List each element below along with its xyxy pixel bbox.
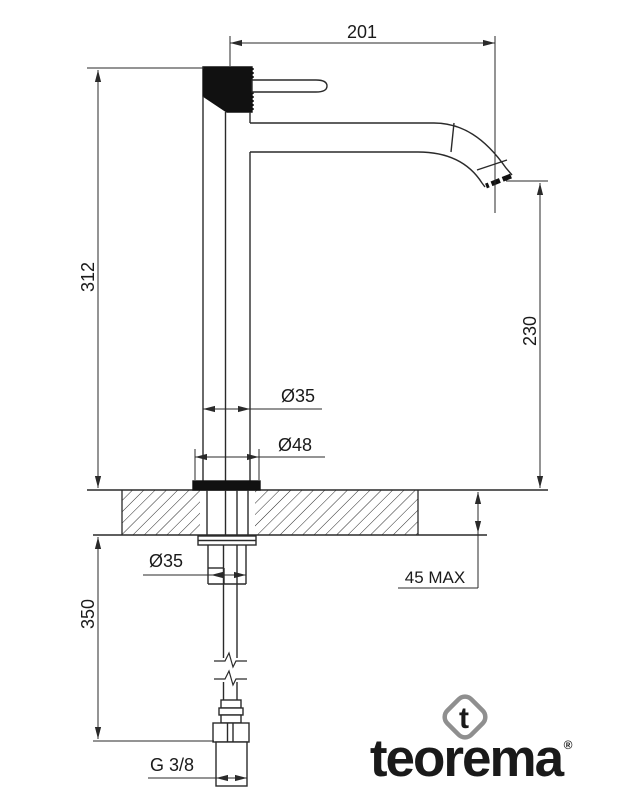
faucet-body-column (203, 96, 250, 481)
faucet-spout (250, 123, 512, 187)
g38-connector-nut (213, 723, 249, 786)
faucet-lever (252, 80, 327, 92)
dim-total-height (87, 68, 204, 488)
label-body-diameter: Ø35 (281, 386, 315, 406)
faucet-handle (203, 67, 252, 112)
pipe-break-symbol (214, 653, 247, 685)
label-base-diameter: Ø48 (278, 435, 312, 455)
label-inlet-thread: G 3/8 (150, 755, 194, 775)
label-counter-thickness: 45 MAX (405, 568, 465, 587)
registered-mark: ® (564, 738, 573, 752)
label-total-height: 312 (78, 262, 98, 292)
label-spout-height: 230 (520, 316, 540, 346)
label-spout-reach: 201 (347, 22, 377, 42)
mounting-shank (207, 490, 248, 536)
drawing-page: 201 312 230 Ø35 Ø48 45 MAX 350 Ø35 G 3/8… (0, 0, 635, 806)
mounting-washer (198, 536, 256, 545)
label-shank-diameter: Ø35 (149, 551, 183, 571)
locknut (208, 545, 246, 584)
technical-drawing-canvas: 201 312 230 Ø35 Ø48 45 MAX 350 Ø35 G 3/8… (0, 0, 635, 806)
countertop-slab (87, 490, 548, 535)
faucet-outline (193, 67, 512, 786)
brand-logo: t teorema ® (370, 693, 573, 788)
base-gasket (193, 481, 260, 490)
logo-wordmark: teorema (370, 729, 565, 788)
label-under-counter-length: 350 (78, 599, 98, 629)
dim-spout-reach (230, 36, 495, 213)
hose-adapter (219, 700, 243, 723)
